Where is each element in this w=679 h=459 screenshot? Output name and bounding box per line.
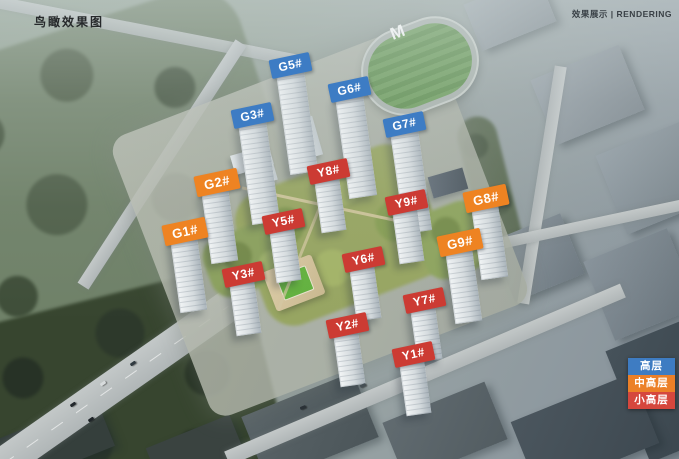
rendering-watermark: 效果展示 | RENDERING bbox=[572, 8, 672, 20]
city-block bbox=[464, 0, 557, 51]
legend-item-high-rise: 高层 bbox=[628, 358, 675, 375]
car bbox=[360, 383, 367, 388]
city-block bbox=[583, 228, 679, 341]
legend: 高层 中高层 小高层 bbox=[628, 358, 675, 409]
city-block bbox=[382, 382, 507, 459]
legend-item-small-high-rise: 小高层 bbox=[628, 392, 675, 409]
legend-item-mid-high-rise: 中高层 bbox=[628, 375, 675, 392]
page-title: 鸟瞰效果图 bbox=[34, 13, 104, 30]
aerial-rendering: M G5# G6# G3# G7# G2# Y8# G8# Y9# G1# Y5… bbox=[0, 0, 679, 459]
